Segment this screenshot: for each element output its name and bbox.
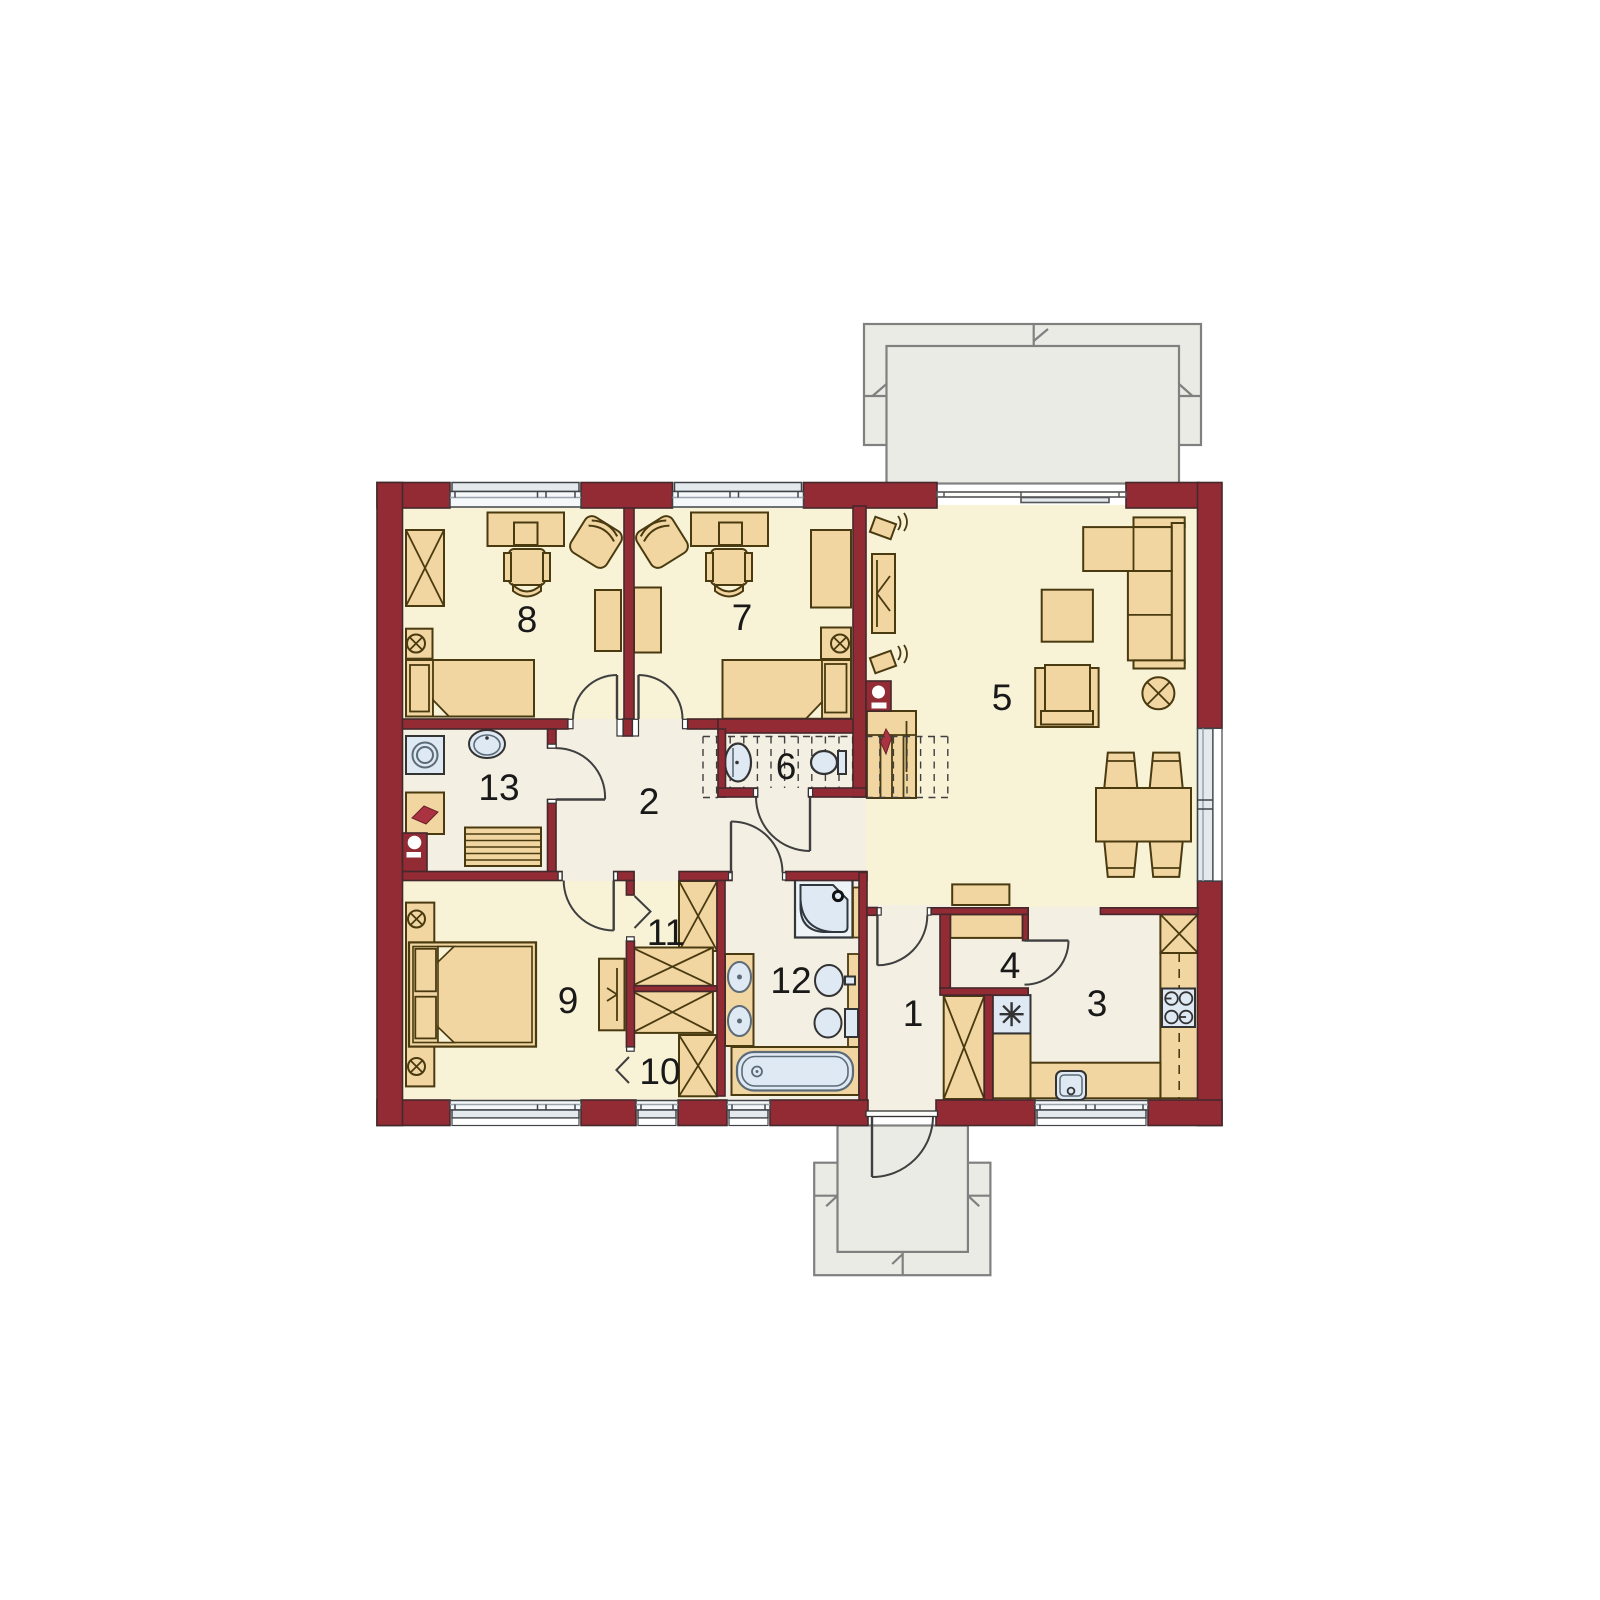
svg-text:4: 4 xyxy=(1000,945,1021,986)
svg-text:6: 6 xyxy=(776,746,797,787)
svg-text:1: 1 xyxy=(903,993,924,1034)
svg-text:7: 7 xyxy=(732,597,753,638)
svg-text:13: 13 xyxy=(478,767,519,808)
svg-text:12: 12 xyxy=(770,960,811,1001)
svg-text:3: 3 xyxy=(1087,983,1108,1024)
svg-text:10: 10 xyxy=(639,1051,680,1092)
svg-text:5: 5 xyxy=(992,677,1013,718)
svg-text:8: 8 xyxy=(517,599,538,640)
svg-text:11: 11 xyxy=(647,912,685,953)
svg-text:9: 9 xyxy=(558,980,579,1021)
svg-text:2: 2 xyxy=(639,781,660,822)
